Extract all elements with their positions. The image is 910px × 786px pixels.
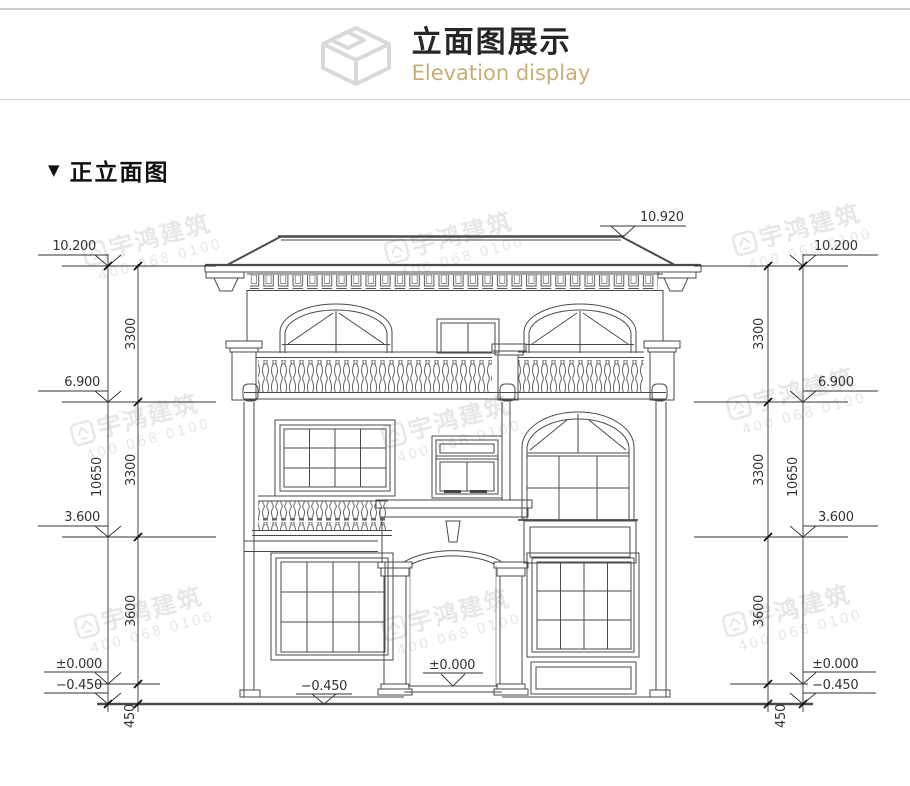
chain-right-3: 450 — [774, 704, 789, 728]
first-floor-right-panel — [531, 662, 636, 694]
chain-left-0: 3300 — [124, 318, 139, 350]
first-floor-right-window — [527, 553, 639, 657]
chain-right-0: 3300 — [752, 318, 767, 350]
level-right-2: 3.600 — [818, 510, 854, 525]
dentil-frieze — [247, 274, 663, 291]
chain-left-2: 3600 — [124, 595, 139, 627]
third-floor-right-arch-window — [524, 304, 636, 353]
second-floor-left-window — [275, 420, 395, 496]
level-left-2: 3.600 — [64, 510, 100, 525]
chain-right-1: 3300 — [752, 454, 767, 486]
third-floor-center-door — [437, 319, 499, 353]
level-left-3: ±0.000 — [56, 657, 102, 672]
floor-minus-label: −0.450 — [301, 679, 347, 694]
overall-right: 10650 — [786, 457, 801, 497]
level-right-1: 6.900 — [818, 375, 854, 390]
ridge-level-label: 10.920 — [640, 210, 684, 225]
first-floor-left-window — [271, 553, 393, 660]
level-left-0: 10.200 — [52, 239, 96, 254]
second-floor-right-arch-window — [518, 412, 638, 520]
overall-left: 10650 — [90, 457, 105, 497]
chain-left-1: 3300 — [124, 454, 139, 486]
level-left-4: −0.450 — [56, 678, 102, 693]
level-right-0: 10.200 — [814, 239, 858, 254]
second-floor-balcony-railing — [244, 496, 392, 552]
third-floor-railing — [226, 341, 680, 400]
watermark-grid — [69, 198, 874, 662]
level-right-3: ±0.000 — [812, 657, 858, 672]
level-left-1: 6.900 — [64, 375, 100, 390]
chain-left-3: 450 — [123, 704, 138, 728]
second-floor-right-panel — [524, 521, 636, 563]
floor-zero-label: ±0.000 — [429, 658, 475, 673]
third-floor-left-arch-window — [280, 304, 392, 353]
third-floor-wall — [247, 290, 663, 341]
chain-right-2: 3600 — [752, 595, 767, 627]
elevation-drawing: 宇鸿建筑 400 068 0100 — [0, 0, 910, 786]
level-right-4: −0.450 — [812, 678, 858, 693]
